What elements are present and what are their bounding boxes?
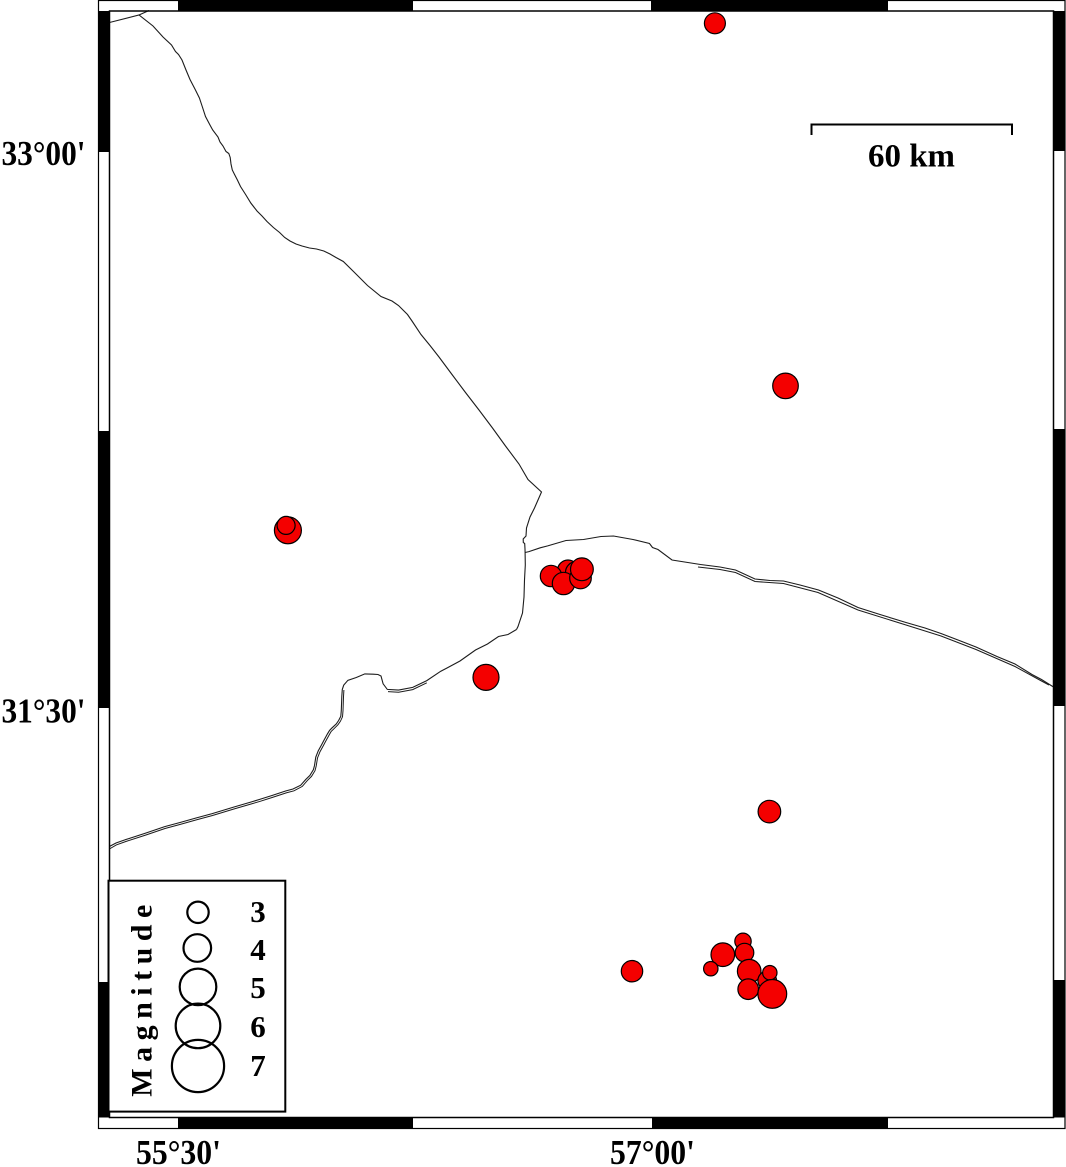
svg-text:31°30': 31°30'	[2, 692, 86, 731]
svg-text:55°30': 55°30'	[136, 1133, 221, 1167]
svg-text:5: 5	[250, 970, 266, 1005]
svg-text:6: 6	[250, 1009, 266, 1044]
svg-text:33°00': 33°00'	[2, 134, 86, 173]
svg-text:4: 4	[250, 932, 266, 967]
svg-text:7: 7	[250, 1048, 266, 1083]
svg-text:Magnitude: Magnitude	[126, 898, 159, 1097]
svg-text:60 km: 60 km	[868, 139, 955, 175]
svg-text:3: 3	[250, 894, 266, 929]
svg-text:57°00': 57°00'	[610, 1133, 695, 1167]
